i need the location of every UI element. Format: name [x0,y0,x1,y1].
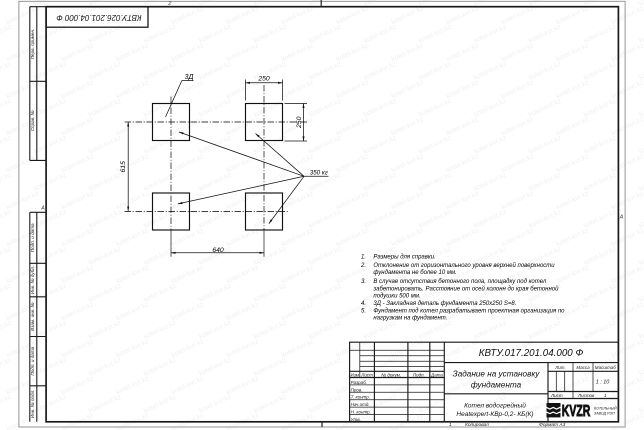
svg-text:kotel-kvr.kz: kotel-kvr.kz [115,301,150,322]
svg-text:kotel-kvr.kz: kotel-kvr.kz [583,60,618,81]
svg-text:5.: 5. [361,308,366,314]
svg-text:kotel-kvr.kz: kotel-kvr.kz [60,227,95,248]
svg-text:kotel-kvr.kz: kotel-kvr.kz [88,60,123,81]
svg-text:kotel-kvr.kz: kotel-kvr.kz [0,356,13,377]
svg-text:kotel-kvr.kz: kotel-kvr.kz [445,116,480,137]
svg-text:kotel-kvr.kz: kotel-kvr.kz [473,319,508,340]
svg-text:kotel-kvr.kz: kotel-kvr.kz [555,42,590,63]
svg-text:kotel-kvr.kz: kotel-kvr.kz [0,60,13,81]
svg-text:kotel-kvr.kz: kotel-kvr.kz [583,171,618,192]
svg-text:kotel-kvr.kz: kotel-kvr.kz [5,264,40,285]
svg-text:В случае отсутствия бетонного: В случае отсутствия бетонного пола, площ… [373,279,546,285]
svg-text:kotel-kvr.kz: kotel-kvr.kz [610,264,644,285]
svg-text:kotel-kvr.kz: kotel-kvr.kz [638,23,644,44]
svg-text:kotel-kvr.kz: kotel-kvr.kz [500,116,535,137]
svg-text:kotel-kvr.kz: kotel-kvr.kz [445,153,480,174]
svg-text:kotel-kvr.kz: kotel-kvr.kz [143,393,178,414]
svg-text:kotel-kvr.kz: kotel-kvr.kz [638,134,644,155]
svg-text:3Д - Закладная деталь фундамен: 3Д - Закладная деталь фундамента 250х250… [373,301,516,307]
svg-text:3Д: 3Д [185,74,194,81]
svg-text:kotel-kvr.kz: kotel-kvr.kz [225,79,260,100]
svg-text:kotel-kvr.kz: kotel-kvr.kz [390,153,425,174]
svg-text:А: А [619,215,624,221]
svg-text:kotel-kvr.kz: kotel-kvr.kz [198,97,233,118]
svg-text:kotel-kvr.kz: kotel-kvr.kz [555,153,590,174]
svg-text:Взам. инв. №: Взам. инв. № [30,302,35,330]
svg-text:kotel-kvr.kz: kotel-kvr.kz [610,227,644,248]
svg-text:kotel-kvr.kz: kotel-kvr.kz [143,282,178,303]
svg-text:kotel-kvr.kz: kotel-kvr.kz [500,227,535,248]
svg-text:kotel-kvr.kz: kotel-kvr.kz [115,116,150,137]
svg-text:kotel-kvr.kz: kotel-kvr.kz [335,375,370,396]
svg-text:kotel-kvr.kz: kotel-kvr.kz [280,227,315,248]
svg-text:kotel-kvr.kz: kotel-kvr.kz [610,190,644,211]
svg-text:kotel-kvr.kz: kotel-kvr.kz [445,42,480,63]
svg-text:KVZR: KVZR [562,403,591,420]
svg-text:kotel-kvr.kz: kotel-kvr.kz [33,393,68,414]
svg-text:КОТЕЛЬНЫЙ: КОТЕЛЬНЫЙ [594,407,617,411]
svg-text:kotel-kvr.kz: kotel-kvr.kz [418,208,453,229]
svg-text:kotel-kvr.kz: kotel-kvr.kz [583,23,618,44]
svg-text:kotel-kvr.kz: kotel-kvr.kz [33,134,68,155]
svg-text:kotel-kvr.kz: kotel-kvr.kz [308,208,343,229]
svg-text:kotel-kvr.kz: kotel-kvr.kz [335,79,370,100]
svg-text:2: 2 [167,1,171,7]
svg-text:kotel-kvr.kz: kotel-kvr.kz [335,227,370,248]
svg-text:kotel-kvr.kz: kotel-kvr.kz [0,393,13,414]
svg-text:Задание на установку: Задание на установку [453,369,541,378]
svg-text:kotel-kvr.kz: kotel-kvr.kz [638,319,644,340]
svg-text:забетонировать. Расстояние от: забетонировать. Расстояние от осей колон… [372,286,559,293]
svg-text:Масштаб: Масштаб [595,365,616,370]
svg-text:kotel-kvr.kz: kotel-kvr.kz [280,264,315,285]
svg-text:Подп. и дата: Подп. и дата [30,346,35,375]
svg-text:kotel-kvr.kz: kotel-kvr.kz [225,375,260,396]
svg-text:kotel-kvr.kz: kotel-kvr.kz [418,319,453,340]
svg-text:kotel-kvr.kz: kotel-kvr.kz [445,190,480,211]
svg-text:kotel-kvr.kz: kotel-kvr.kz [0,319,13,340]
svg-text:kotel-kvr.kz: kotel-kvr.kz [473,208,508,229]
svg-text:kotel-kvr.kz: kotel-kvr.kz [418,134,453,155]
svg-text:kotel-kvr.kz: kotel-kvr.kz [143,356,178,377]
svg-text:kotel-kvr.kz: kotel-kvr.kz [390,42,425,63]
svg-text:kotel-kvr.kz: kotel-kvr.kz [253,393,288,414]
svg-text:kotel-kvr.kz: kotel-kvr.kz [88,319,123,340]
svg-text:kotel-kvr.kz: kotel-kvr.kz [33,60,68,81]
svg-text:kotel-kvr.kz: kotel-kvr.kz [500,42,535,63]
svg-text:Подп.: Подп. [413,372,425,377]
svg-text:kotel-kvr.kz: kotel-kvr.kz [253,356,288,377]
svg-text:kotel-kvr.kz: kotel-kvr.kz [638,356,644,377]
svg-text:kotel-kvr.kz: kotel-kvr.kz [610,338,644,359]
svg-text:Инв. № дубл.: Инв. № дубл. [30,266,35,294]
svg-text:Дата: Дата [430,372,443,377]
svg-text:kotel-kvr.kz: kotel-kvr.kz [638,245,644,266]
svg-text:kotel-kvr.kz: kotel-kvr.kz [5,338,40,359]
svg-text:kotel-kvr.kz: kotel-kvr.kz [170,5,205,26]
svg-text:kotel-kvr.kz: kotel-kvr.kz [280,5,315,26]
svg-text:kotel-kvr.kz: kotel-kvr.kz [638,282,644,303]
svg-text:kotel-kvr.kz: kotel-kvr.kz [500,190,535,211]
svg-text:kotel-kvr.kz: kotel-kvr.kz [88,171,123,192]
svg-text:kotel-kvr.kz: kotel-kvr.kz [363,97,398,118]
svg-text:kotel-kvr.kz: kotel-kvr.kz [280,338,315,359]
svg-text:kotel-kvr.kz: kotel-kvr.kz [500,79,535,100]
svg-text:kotel-kvr.kz: kotel-kvr.kz [308,282,343,303]
svg-text:kotel-kvr.kz: kotel-kvr.kz [473,23,508,44]
svg-text:kotel-kvr.kz: kotel-kvr.kz [60,338,95,359]
svg-text:kotel-kvr.kz: kotel-kvr.kz [638,60,644,81]
svg-text:kotel-kvr.kz: kotel-kvr.kz [115,338,150,359]
svg-text:kotel-kvr.kz: kotel-kvr.kz [528,23,563,44]
svg-text:kotel-kvr.kz: kotel-kvr.kz [253,171,288,192]
svg-text:kotel-kvr.kz: kotel-kvr.kz [115,42,150,63]
svg-text:Утв.: Утв. [351,417,361,422]
svg-text:kotel-kvr.kz: kotel-kvr.kz [0,0,13,8]
svg-text:Н. контр.: Н. контр. [351,409,371,414]
svg-text:подушки 500 мм.: подушки 500 мм. [373,294,420,300]
svg-text:kotel-kvr.kz: kotel-kvr.kz [0,134,13,155]
svg-text:kotel-kvr.kz: kotel-kvr.kz [363,23,398,44]
svg-text:1: 1 [449,422,452,428]
svg-text:КВТУ.017.201.04.000 Ф: КВТУ.017.201.04.000 Ф [479,348,584,359]
svg-text:kotel-kvr.kz: kotel-kvr.kz [88,97,123,118]
svg-text:kotel-kvr.kz: kotel-kvr.kz [0,208,13,229]
svg-text:kotel-kvr.kz: kotel-kvr.kz [390,190,425,211]
svg-text:kotel-kvr.kz: kotel-kvr.kz [33,319,68,340]
svg-text:kotel-kvr.kz: kotel-kvr.kz [610,116,644,137]
svg-text:kotel-kvr.kz: kotel-kvr.kz [555,227,590,248]
svg-text:kotel-kvr.kz: kotel-kvr.kz [170,301,205,322]
svg-text:kotel-kvr.kz: kotel-kvr.kz [170,375,205,396]
svg-text:КВТУ.026.201.04.000 Ф: КВТУ.026.201.04.000 Ф [56,13,142,22]
svg-text:kotel-kvr.kz: kotel-kvr.kz [500,5,535,26]
svg-text:kotel-kvr.kz: kotel-kvr.kz [198,356,233,377]
svg-text:Лист: Лист [360,372,373,377]
svg-text:kotel-kvr.kz: kotel-kvr.kz [225,301,260,322]
svg-text:kotel-kvr.kz: kotel-kvr.kz [308,60,343,81]
svg-text:Инв. № подл.: Инв. № подл. [30,390,35,419]
svg-text:kotel-kvr.kz: kotel-kvr.kz [33,208,68,229]
svg-text:kotel-kvr.kz: kotel-kvr.kz [308,97,343,118]
svg-text:kotel-kvr.kz: kotel-kvr.kz [363,134,398,155]
svg-text:№ докум.: № докум. [381,372,401,377]
svg-text:Heatexpert-КВр-0,2- КБ(К): Heatexpert-КВр-0,2- КБ(К) [456,411,533,418]
svg-text:kotel-kvr.kz: kotel-kvr.kz [5,301,40,322]
svg-text:Т. контр.: Т. контр. [351,395,370,400]
svg-text:kotel-kvr.kz: kotel-kvr.kz [0,171,13,192]
svg-text:kotel-kvr.kz: kotel-kvr.kz [225,116,260,137]
svg-text:kotel-kvr.kz: kotel-kvr.kz [198,319,233,340]
svg-text:kotel-kvr.kz: kotel-kvr.kz [335,153,370,174]
svg-text:kotel-kvr.kz: kotel-kvr.kz [555,190,590,211]
svg-text:фундамента: фундамента [471,380,522,389]
svg-text:kotel-kvr.kz: kotel-kvr.kz [60,301,95,322]
svg-text:kotel-kvr.kz: kotel-kvr.kz [528,208,563,229]
svg-text:kotel-kvr.kz: kotel-kvr.kz [555,5,590,26]
svg-text:kotel-kvr.kz: kotel-kvr.kz [115,375,150,396]
svg-text:kotel-kvr.kz: kotel-kvr.kz [638,171,644,192]
svg-text:kotel-kvr.kz: kotel-kvr.kz [170,42,205,63]
svg-text:kotel-kvr.kz: kotel-kvr.kz [335,116,370,137]
svg-text:kotel-kvr.kz: kotel-kvr.kz [583,134,618,155]
svg-text:Разраб.: Разраб. [351,380,367,385]
svg-text:kotel-kvr.kz: kotel-kvr.kz [225,264,260,285]
svg-text:kotel-kvr.kz: kotel-kvr.kz [390,5,425,26]
svg-text:kotel-kvr.kz: kotel-kvr.kz [390,116,425,137]
svg-text:kotel-kvr.kz: kotel-kvr.kz [60,264,95,285]
svg-text:kotel-kvr.kz: kotel-kvr.kz [88,208,123,229]
svg-text:Масса: Масса [576,365,590,370]
svg-text:kotel-kvr.kz: kotel-kvr.kz [88,356,123,377]
svg-text:Формат А3: Формат А3 [539,422,566,428]
svg-text:kotel-kvr.kz: kotel-kvr.kz [115,79,150,100]
svg-text:Подп. и дата: Подп. и дата [30,223,35,252]
svg-text:kotel-kvr.kz: kotel-kvr.kz [170,153,205,174]
svg-text:kotel-kvr.kz: kotel-kvr.kz [528,60,563,81]
svg-text:kotel-kvr.kz: kotel-kvr.kz [225,42,260,63]
svg-text:kotel-kvr.kz: kotel-kvr.kz [143,171,178,192]
svg-text:kotel-kvr.kz: kotel-kvr.kz [418,60,453,81]
svg-text:kotel-kvr.kz: kotel-kvr.kz [170,116,205,137]
svg-text:kotel-kvr.kz: kotel-kvr.kz [390,227,425,248]
svg-text:kotel-kvr.kz: kotel-kvr.kz [225,153,260,174]
svg-text:kotel-kvr.kz: kotel-kvr.kz [473,134,508,155]
svg-text:Справ. №: Справ. № [30,110,35,131]
svg-text:kotel-kvr.kz: kotel-kvr.kz [610,42,644,63]
svg-text:kotel-kvr.kz: kotel-kvr.kz [583,319,618,340]
svg-text:kotel-kvr.kz: kotel-kvr.kz [445,5,480,26]
svg-text:kotel-kvr.kz: kotel-kvr.kz [253,245,288,266]
svg-text:kotel-kvr.kz: kotel-kvr.kz [0,245,13,266]
svg-text:kotel-kvr.kz: kotel-kvr.kz [253,319,288,340]
svg-text:kotel-kvr.kz: kotel-kvr.kz [638,97,644,118]
svg-text:kotel-kvr.kz: kotel-kvr.kz [5,5,40,26]
svg-text:kotel-kvr.kz: kotel-kvr.kz [528,134,563,155]
svg-text:kotel-kvr.kz: kotel-kvr.kz [143,134,178,155]
svg-text:kotel-kvr.kz: kotel-kvr.kz [253,23,288,44]
svg-text:350 кг: 350 кг [310,169,328,176]
svg-text:Лит.: Лит. [554,365,566,370]
svg-text:3.: 3. [361,279,366,285]
svg-text:kotel-kvr.kz: kotel-kvr.kz [418,393,453,414]
svg-text:kotel-kvr.kz: kotel-kvr.kz [335,5,370,26]
svg-text:kotel-kvr.kz: kotel-kvr.kz [198,282,233,303]
svg-text:А: А [40,206,45,212]
svg-text:kotel-kvr.kz: kotel-kvr.kz [528,319,563,340]
svg-text:kotel-kvr.kz: kotel-kvr.kz [610,301,644,322]
svg-text:kotel-kvr.kz: kotel-kvr.kz [60,79,95,100]
svg-text:Лист: Лист [550,393,563,398]
svg-text:kotel-kvr.kz: kotel-kvr.kz [5,42,40,63]
svg-text:kotel-kvr.kz: kotel-kvr.kz [610,79,644,100]
svg-text:kotel-kvr.kz: kotel-kvr.kz [143,60,178,81]
svg-text:kotel-kvr.kz: kotel-kvr.kz [363,208,398,229]
svg-text:250: 250 [296,116,303,129]
svg-text:kotel-kvr.kz: kotel-kvr.kz [308,23,343,44]
svg-text:Нач.отд.: Нач.отд. [351,402,370,407]
svg-text:kotel-kvr.kz: kotel-kvr.kz [143,245,178,266]
svg-text:kotel-kvr.kz: kotel-kvr.kz [308,319,343,340]
svg-text:kotel-kvr.kz: kotel-kvr.kz [225,338,260,359]
svg-text:kotel-kvr.kz: kotel-kvr.kz [308,134,343,155]
svg-text:250: 250 [257,75,270,82]
svg-text:kotel-kvr.kz: kotel-kvr.kz [473,171,508,192]
svg-text:kotel-kvr.kz: kotel-kvr.kz [33,282,68,303]
svg-text:kotel-kvr.kz: kotel-kvr.kz [60,375,95,396]
svg-text:kotel-kvr.kz: kotel-kvr.kz [253,282,288,303]
svg-text:kotel-kvr.kz: kotel-kvr.kz [555,264,590,285]
svg-text:kotel-kvr.kz: kotel-kvr.kz [335,190,370,211]
svg-text:615: 615 [120,161,127,173]
svg-text:kotel-kvr.kz: kotel-kvr.kz [60,153,95,174]
svg-text:kotel-kvr.kz: kotel-kvr.kz [88,134,123,155]
svg-text:kotel-kvr.kz: kotel-kvr.kz [5,153,40,174]
svg-text:kotel-kvr.kz: kotel-kvr.kz [170,338,205,359]
svg-text:kotel-kvr.kz: kotel-kvr.kz [0,282,13,303]
svg-text:фундамента не более 10 мм.: фундамента не более 10 мм. [373,270,456,276]
svg-text:ЗАВОД РЭП: ЗАВОД РЭП [594,412,615,416]
svg-text:kotel-kvr.kz: kotel-kvr.kz [555,79,590,100]
svg-text:kotel-kvr.kz: kotel-kvr.kz [115,227,150,248]
svg-text:kotel-kvr.kz: kotel-kvr.kz [418,97,453,118]
svg-text:Листов: Листов [577,393,595,398]
svg-text:kotel-kvr.kz: kotel-kvr.kz [170,264,205,285]
svg-text:Изм: Изм [351,372,359,377]
svg-text:kotel-kvr.kz: kotel-kvr.kz [280,375,315,396]
svg-text:kotel-kvr.kz: kotel-kvr.kz [528,171,563,192]
svg-text:640: 640 [212,247,224,254]
svg-text:Котел водогрейный: Котел водогрейный [464,402,526,410]
svg-text:Отклонение от горизонтального: Отклонение от горизонтального уровня вер… [373,262,555,269]
svg-text:kotel-kvr.kz: kotel-kvr.kz [280,42,315,63]
svg-text:kotel-kvr.kz: kotel-kvr.kz [88,393,123,414]
svg-text:kotel-kvr.kz: kotel-kvr.kz [335,42,370,63]
svg-text:kotel-kvr.kz: kotel-kvr.kz [0,97,13,118]
svg-text:kotel-kvr.kz: kotel-kvr.kz [115,190,150,211]
svg-text:kotel-kvr.kz: kotel-kvr.kz [610,5,644,26]
svg-text:kotel-kvr.kz: kotel-kvr.kz [363,60,398,81]
svg-text:2.: 2. [360,263,366,269]
svg-text:kotel-kvr.kz: kotel-kvr.kz [308,393,343,414]
svg-text:4.: 4. [361,301,366,307]
svg-text:kotel-kvr.kz: kotel-kvr.kz [60,42,95,63]
svg-text:kotel-kvr.kz: kotel-kvr.kz [60,116,95,137]
svg-text:kotel-kvr.kz: kotel-kvr.kz [610,153,644,174]
svg-text:1 : 10: 1 : 10 [596,380,610,386]
svg-text:Перв. примен.: Перв. примен. [30,29,35,60]
svg-text:kotel-kvr.kz: kotel-kvr.kz [33,356,68,377]
svg-text:kotel-kvr.kz: kotel-kvr.kz [33,171,68,192]
svg-text:kotel-kvr.kz: kotel-kvr.kz [198,60,233,81]
svg-text:kotel-kvr.kz: kotel-kvr.kz [88,282,123,303]
svg-text:kotel-kvr.kz: kotel-kvr.kz [555,116,590,137]
svg-text:нагрузкам на фундамент.: нагрузкам на фундамент. [373,316,447,322]
svg-text:kotel-kvr.kz: kotel-kvr.kz [638,393,644,414]
svg-text:kotel-kvr.kz: kotel-kvr.kz [0,23,13,44]
svg-text:Пров.: Пров. [351,387,363,392]
svg-text:kotel-kvr.kz: kotel-kvr.kz [280,301,315,322]
svg-text:kotel-kvr.kz: kotel-kvr.kz [308,356,343,377]
svg-text:kotel-kvr.kz: kotel-kvr.kz [280,79,315,100]
svg-text:Копировал: Копировал [465,422,489,428]
svg-text:kotel-kvr.kz: kotel-kvr.kz [5,227,40,248]
svg-text:kotel-kvr.kz: kotel-kvr.kz [445,79,480,100]
svg-text:kotel-kvr.kz: kotel-kvr.kz [5,190,40,211]
svg-text:kotel-kvr.kz: kotel-kvr.kz [445,338,480,359]
svg-text:kotel-kvr.kz: kotel-kvr.kz [60,190,95,211]
svg-text:kotel-kvr.kz: kotel-kvr.kz [583,208,618,229]
svg-text:kotel-kvr.kz: kotel-kvr.kz [5,116,40,137]
svg-text:1.: 1. [361,254,366,260]
svg-text:kotel-kvr.kz: kotel-kvr.kz [418,171,453,192]
svg-text:kotel-kvr.kz: kotel-kvr.kz [198,23,233,44]
svg-text:kotel-kvr.kz: kotel-kvr.kz [115,264,150,285]
svg-text:kotel-kvr.kz: kotel-kvr.kz [88,245,123,266]
svg-text:kotel-kvr.kz: kotel-kvr.kz [225,5,260,26]
svg-text:kotel-kvr.kz: kotel-kvr.kz [583,282,618,303]
svg-text:kotel-kvr.kz: kotel-kvr.kz [418,23,453,44]
svg-text:kotel-kvr.kz: kotel-kvr.kz [198,171,233,192]
svg-text:kotel-kvr.kz: kotel-kvr.kz [390,79,425,100]
svg-text:kotel-kvr.kz: kotel-kvr.kz [473,60,508,81]
svg-text:kotel-kvr.kz: kotel-kvr.kz [610,375,644,396]
svg-text:kotel-kvr.kz: kotel-kvr.kz [638,208,644,229]
svg-text:kotel-kvr.kz: kotel-kvr.kz [5,79,40,100]
svg-text:kotel-kvr.kz: kotel-kvr.kz [583,97,618,118]
svg-text:kotel-kvr.kz: kotel-kvr.kz [473,97,508,118]
svg-text:kotel-kvr.kz: kotel-kvr.kz [363,319,398,340]
svg-text:Фундамент под котел разрабатыв: Фундамент под котел разрабатывает проект… [373,308,565,314]
svg-text:kotel-kvr.kz: kotel-kvr.kz [198,393,233,414]
svg-text:kotel-kvr.kz: kotel-kvr.kz [170,79,205,100]
svg-text:kotel-kvr.kz: kotel-kvr.kz [363,171,398,192]
svg-text:kotel-kvr.kz: kotel-kvr.kz [500,153,535,174]
svg-text:kotel-kvr.kz: kotel-kvr.kz [33,97,68,118]
svg-text:kotel-kvr.kz: kotel-kvr.kz [528,97,563,118]
svg-text:Размеры для справки.: Размеры для справки. [373,254,435,260]
svg-text:kotel-kvr.kz: kotel-kvr.kz [308,245,343,266]
svg-text:kotel-kvr.kz: kotel-kvr.kz [445,227,480,248]
svg-text:kotel-kvr.kz: kotel-kvr.kz [143,319,178,340]
svg-text:kotel-kvr.kz: kotel-kvr.kz [583,245,618,266]
